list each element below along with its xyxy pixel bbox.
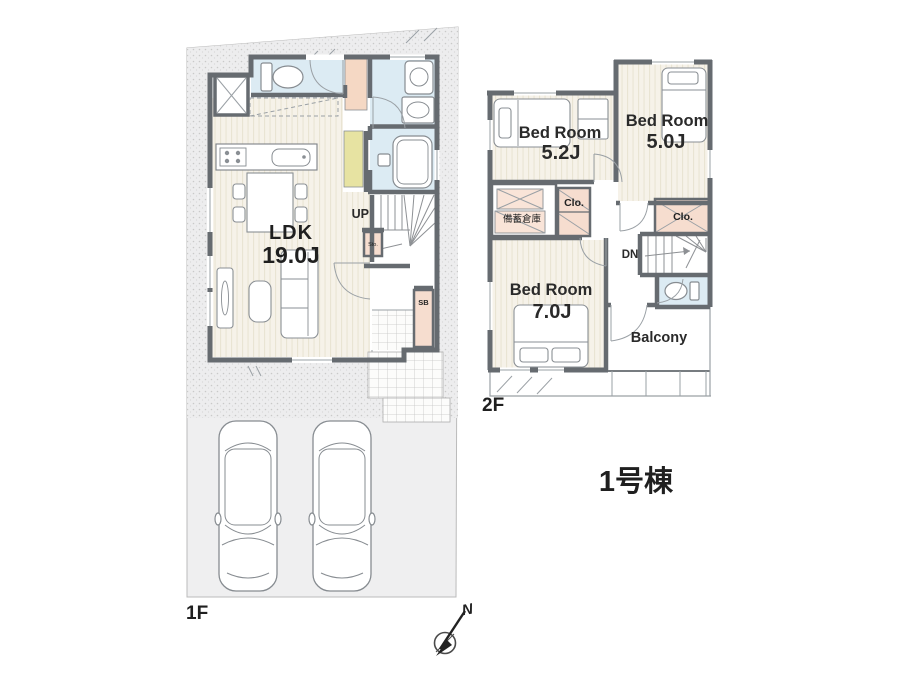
- floor2-plan: Bed Room 5.2J Bed Room 5.0J Bed Room 7.0…: [487, 60, 713, 397]
- stairs-down-label: DN: [622, 249, 639, 261]
- stock-storage: [492, 184, 556, 236]
- floor2-label: 2F: [482, 395, 504, 416]
- closet-left: [558, 188, 590, 236]
- bedroom3-size: 7.0J: [533, 301, 572, 323]
- compass-north-label: N: [461, 600, 476, 619]
- closet-left-label: Clo.: [564, 197, 584, 209]
- tv-board: [217, 268, 233, 328]
- building-name: 1号棟: [599, 465, 674, 498]
- car-1: [215, 421, 281, 591]
- ldk-size-label: 19.0J: [262, 242, 320, 268]
- hall-cabinet: [345, 59, 367, 110]
- compass-icon: N: [435, 600, 476, 656]
- stairs-up-label: UP: [352, 207, 369, 221]
- bedroom2-label: Bed Room: [626, 112, 709, 130]
- ldk-label: LDK: [269, 222, 313, 244]
- bedroom1-size: 5.2J: [542, 142, 581, 164]
- bedroom2-size: 5.0J: [647, 131, 686, 153]
- porch-step: [383, 398, 450, 422]
- small-storage-label: Sto.: [368, 242, 378, 248]
- floorplan-image: LDK 19.0J UP SB Sto. 1F: [0, 0, 900, 673]
- washer-and-sink: [402, 61, 434, 123]
- stock-storage-label: 備蓄倉庫: [503, 213, 542, 225]
- floor1-label: 1F: [186, 603, 208, 624]
- kitchen-counter: [216, 144, 317, 170]
- low-table: [249, 281, 271, 322]
- shoe-box-label: SB: [418, 298, 429, 307]
- balcony-label: Balcony: [631, 330, 687, 346]
- closet-right-label: Clo.: [673, 211, 693, 223]
- towel-shelf: [344, 131, 363, 187]
- floorplan-page: LDK 19.0J UP SB Sto. 1F: [0, 0, 900, 673]
- bedroom1-label: Bed Room: [519, 124, 602, 142]
- storage-xbox: [215, 76, 248, 115]
- car-2: [309, 421, 375, 591]
- bedroom3-label: Bed Room: [510, 281, 593, 299]
